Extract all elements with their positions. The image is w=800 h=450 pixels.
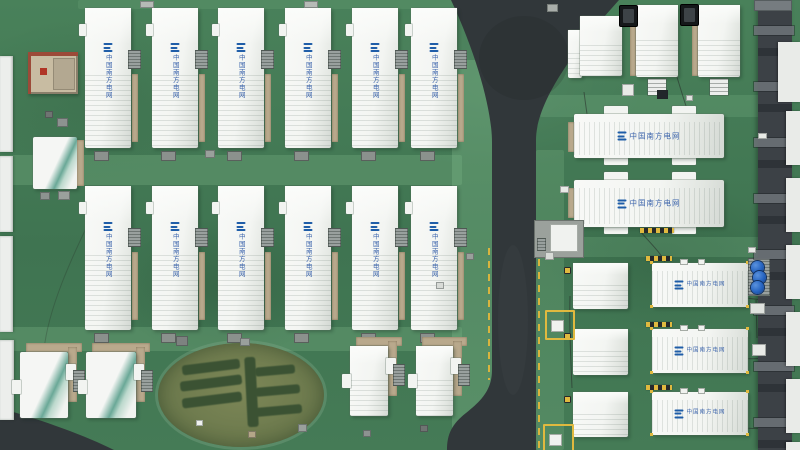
corner-marking: [650, 433, 653, 436]
equipment-box: [248, 431, 256, 438]
corner-marking: [650, 305, 653, 308]
hazard-stripe-bar: [640, 228, 674, 233]
corner-marking: [746, 433, 749, 436]
warning-sign: [564, 396, 571, 403]
equipment-box: [304, 1, 318, 8]
equipment-box: [547, 4, 558, 12]
perimeter-white-panel: [786, 111, 800, 165]
equipment-box: [750, 303, 765, 314]
equipment-box: [758, 133, 767, 139]
equipment-box: [420, 425, 428, 432]
perimeter-white-panel: [786, 379, 800, 433]
equipment-box: [622, 84, 634, 96]
equipment-box: [560, 186, 569, 193]
equipment-box: [57, 118, 68, 127]
equipment-box: [58, 191, 70, 200]
perimeter-white-panel: [778, 42, 800, 102]
equipment-box: [205, 150, 215, 158]
equipment-box: [176, 336, 188, 346]
wall-crossbeam: [754, 26, 794, 35]
corner-marking: [746, 327, 749, 330]
equipment-box: [466, 253, 474, 260]
perimeter-white-panel: [786, 245, 800, 299]
equipment-box: [40, 192, 50, 200]
blue-barrel: [751, 281, 764, 294]
pad-cabinet: [551, 320, 564, 332]
perimeter-white-panel: [786, 312, 800, 366]
equipment-box: [686, 95, 693, 101]
equipment-box: [363, 430, 371, 437]
equipment-box: [240, 338, 250, 346]
pad-cabinet: [550, 224, 578, 252]
equipment-box: [754, 0, 792, 11]
equipment-box: [752, 344, 766, 356]
perimeter-white-panel: [786, 442, 800, 450]
corner-marking: [650, 327, 653, 330]
aerial-photo-energy-storage-station: 中国南方电网中国南方电网中国南方电网中国南方电网中国南方电网中国南方电网中国南方…: [0, 0, 800, 450]
corner-marking: [746, 305, 749, 308]
pad-equipment: [537, 238, 546, 251]
equipment-layer: [0, 0, 800, 450]
equipment-box: [298, 424, 307, 432]
corner-marking: [650, 371, 653, 374]
corner-marking: [650, 261, 653, 264]
corner-marking: [650, 390, 653, 393]
pad-cabinet: [549, 434, 562, 446]
perimeter-white-panel: [786, 178, 800, 232]
equipment-box: [657, 90, 668, 99]
equipment-box: [436, 282, 444, 289]
equipment-box: [140, 1, 154, 8]
corner-marking: [746, 371, 749, 374]
equipment-box: [45, 111, 53, 118]
equipment-box: [545, 252, 554, 260]
corner-marking: [746, 390, 749, 393]
equipment-box: [748, 247, 756, 253]
warning-sign: [564, 267, 571, 274]
